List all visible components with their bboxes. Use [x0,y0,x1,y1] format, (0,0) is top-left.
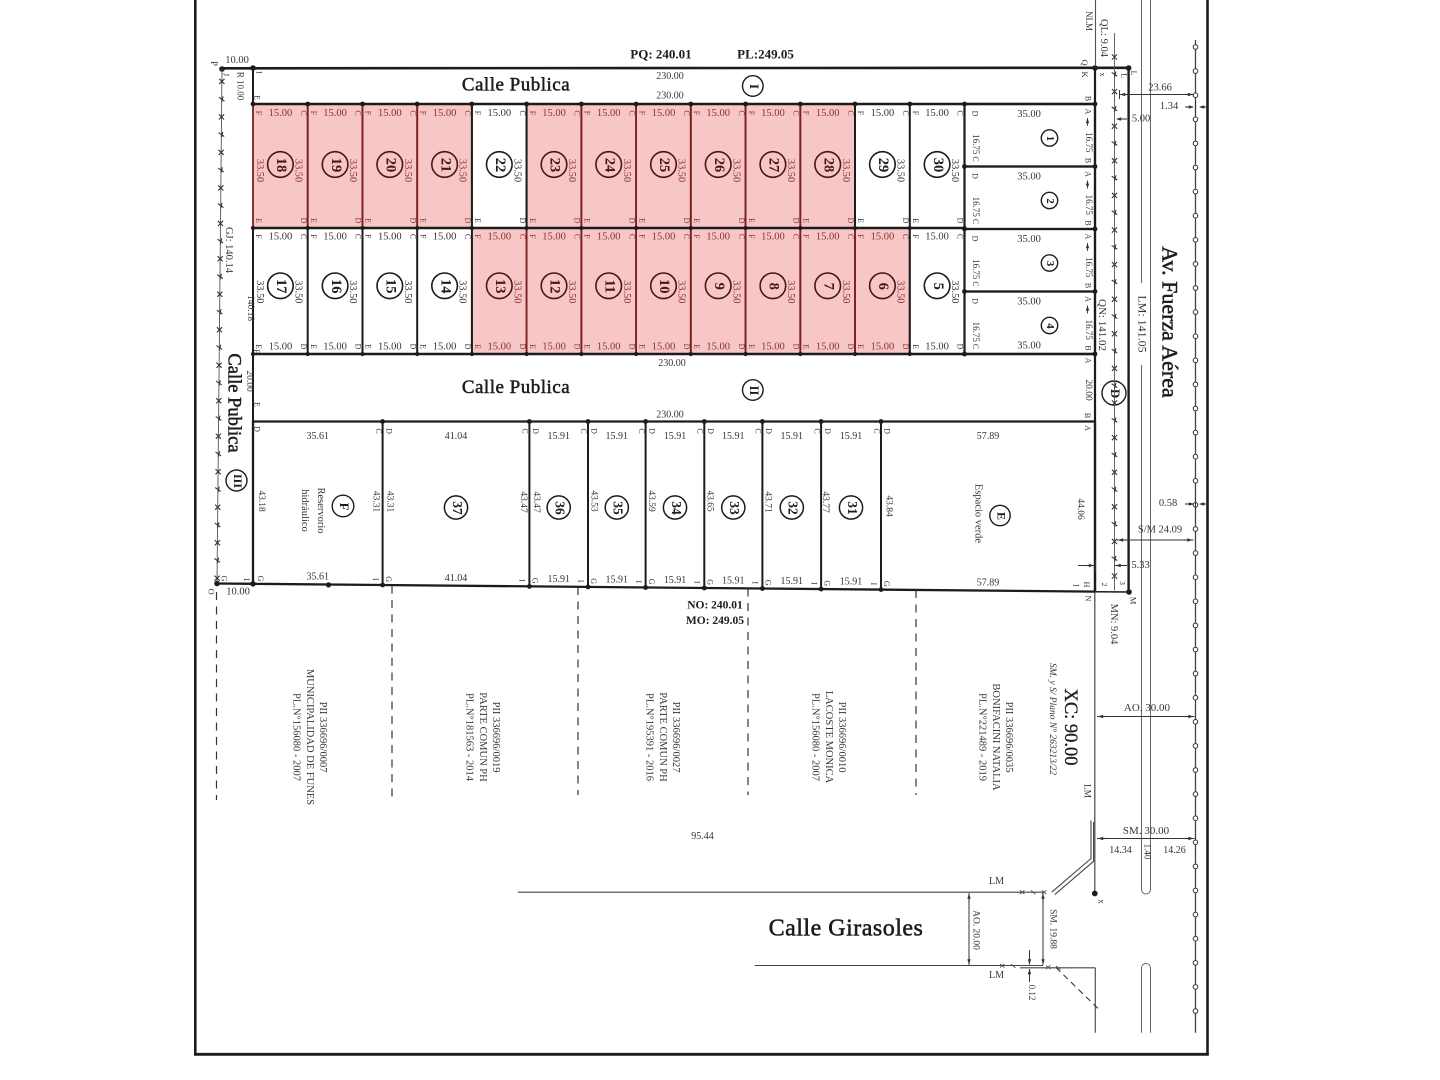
svg-text:43.71: 43.71 [762,491,772,513]
svg-text:E: E [583,344,592,349]
svg-text:AO. 20.00: AO. 20.00 [970,910,980,950]
svg-text:Espacio verde: Espacio verde [973,484,984,544]
svg-text:15.91: 15.91 [606,574,629,585]
svg-text:PL.N°156080 - 2007: PL.N°156080 - 2007 [291,693,302,781]
svg-text:F: F [637,111,646,116]
svg-text:F: F [473,234,482,239]
svg-text:D: D [627,218,636,224]
svg-text:B: B [1084,220,1093,225]
svg-text:B: B [1084,96,1093,101]
svg-text:230.00: 230.00 [656,90,684,101]
svg-text:C: C [971,281,980,286]
svg-text:33.50: 33.50 [895,280,906,303]
svg-text:BONIFACINI NATALIA: BONIFACINI NATALIA [990,683,1001,791]
svg-text:MO: 249.05: MO: 249.05 [686,615,744,627]
svg-text:15.00: 15.00 [816,341,840,352]
svg-text:I: I [255,71,264,74]
svg-text:F: F [911,111,920,116]
svg-text:II: II [747,386,761,396]
svg-text:C: C [299,110,308,115]
svg-text:D: D [883,428,892,434]
svg-text:PL.N°156080 - 2007: PL.N°156080 - 2007 [810,693,821,781]
svg-text:29: 29 [875,158,891,173]
svg-text:B: B [1084,345,1093,350]
svg-text:33.50: 33.50 [566,159,577,182]
svg-text:C: C [518,110,527,115]
svg-text:PII 336696/0019: PII 336696/0019 [490,702,501,773]
svg-text:27: 27 [766,158,782,173]
svg-text:C: C [299,234,308,239]
svg-text:LM: LM [989,876,1004,887]
svg-text:31: 31 [845,501,860,515]
svg-text:C: C [408,110,417,115]
svg-text:S/M 24.09: S/M 24.09 [1138,524,1182,535]
svg-text:G: G [256,576,265,582]
svg-text:O: O [207,588,217,594]
svg-text:16.75: 16.75 [971,322,981,343]
svg-text:LM: 141.05: LM: 141.05 [1135,295,1149,352]
svg-text:SM. 30.00: SM. 30.00 [1123,825,1170,837]
svg-text:C: C [901,110,910,115]
svg-text:SM. 19.88: SM. 19.88 [1047,909,1057,949]
svg-text:F: F [856,234,865,239]
svg-text:D: D [764,428,773,434]
svg-text:C: C [812,428,821,433]
svg-text:Calle Girasoles: Calle Girasoles [769,916,924,942]
svg-text:15.00: 15.00 [925,108,949,119]
svg-text:1.40: 1.40 [1142,844,1152,860]
svg-text:15.00: 15.00 [761,108,785,119]
svg-text:I: I [371,578,380,581]
svg-text:C: C [637,428,646,433]
svg-text:F: F [418,111,427,116]
svg-text:A: A [1084,296,1093,302]
svg-text:43.47: 43.47 [531,491,541,513]
svg-text:13: 13 [492,279,508,294]
svg-text:D: D [791,218,800,224]
svg-text:35.00: 35.00 [1017,296,1041,307]
svg-text:35.00: 35.00 [1017,109,1041,120]
svg-text:I: I [576,580,585,583]
svg-text:E: E [911,344,920,349]
svg-text:P: P [209,61,219,66]
svg-text:33.50: 33.50 [457,159,468,182]
svg-text:E: E [692,344,701,349]
svg-text:15.00: 15.00 [323,108,347,119]
svg-text:43.47: 43.47 [518,491,528,513]
svg-text:F: F [856,111,865,116]
svg-text:G: G [882,581,891,587]
svg-text:41.04: 41.04 [445,573,468,584]
svg-text:D: D [573,218,582,224]
svg-text:15.00: 15.00 [597,341,621,352]
svg-text:C: C [627,234,636,239]
svg-text:PQ: 240.01: PQ: 240.01 [630,46,691,61]
svg-text:G: G [589,578,598,584]
svg-text:33.50: 33.50 [457,280,468,303]
svg-text:G: G [220,576,229,582]
svg-text:C: C [956,110,965,115]
svg-text:NLM: NLM [1084,11,1094,31]
svg-text:E: E [801,344,810,349]
svg-text:I: I [1072,584,1081,587]
svg-text:26: 26 [711,158,727,173]
svg-text:3: 3 [1044,261,1056,267]
svg-text:33.50: 33.50 [895,159,906,182]
svg-text:D: D [956,218,965,224]
svg-text:x: x [1096,899,1106,904]
svg-text:D: D [354,218,363,224]
svg-text:15.00: 15.00 [925,231,949,242]
svg-text:D: D [573,344,582,350]
svg-text:15.91: 15.91 [664,575,687,586]
svg-text:7: 7 [820,283,836,290]
svg-text:D: D [971,173,980,179]
svg-text:8: 8 [766,283,782,290]
svg-text:PL:249.05: PL:249.05 [737,46,794,61]
svg-text:B: B [1083,413,1092,418]
svg-text:15.91: 15.91 [840,431,863,442]
svg-text:E: E [254,218,263,223]
svg-text:PL.N°181563 - 2014: PL.N°181563 - 2014 [464,693,475,782]
svg-text:D: D [956,344,965,350]
svg-text:E: E [583,218,592,223]
svg-text:SM. y S/ Plano N° 263213/22: SM. y S/ Plano N° 263213/22 [1047,663,1058,775]
svg-text:F: F [801,111,810,116]
svg-text:F: F [337,503,351,511]
svg-text:16.75: 16.75 [1084,320,1094,341]
svg-text:C: C [846,234,855,239]
svg-text:15.00: 15.00 [323,231,347,242]
svg-text:1: 1 [1044,136,1056,142]
svg-text:25: 25 [656,158,672,173]
svg-text:F: F [692,234,701,239]
svg-text:15.00: 15.00 [816,108,840,119]
svg-text:E: E [994,512,1008,520]
svg-text:F: F [692,111,701,116]
svg-text:C: C [791,110,800,115]
svg-text:E: E [747,344,756,349]
svg-text:33.50: 33.50 [347,159,358,182]
svg-text:C: C [573,234,582,239]
svg-text:F: F [254,234,263,239]
svg-text:D: D [299,344,308,350]
svg-text:E: E [473,344,482,349]
svg-text:15.00: 15.00 [761,231,785,242]
svg-text:1.34: 1.34 [1160,101,1179,112]
svg-text:Calle Publica: Calle Publica [462,74,570,95]
svg-text:43.31: 43.31 [370,491,380,513]
svg-text:C: C [354,110,363,115]
svg-text:20.00: 20.00 [244,370,254,392]
svg-text:G: G [705,579,714,585]
svg-text:Calle Publica: Calle Publica [223,353,243,452]
svg-text:20: 20 [382,158,398,173]
svg-text:15.00: 15.00 [597,231,621,242]
svg-text:E: E [364,344,373,349]
svg-text:E: E [364,218,373,223]
svg-text:F: F [309,234,318,239]
svg-text:D: D [408,218,417,224]
svg-text:D: D [299,218,308,224]
svg-text:15.00: 15.00 [269,231,293,242]
svg-text:XC: 90.00: XC: 90.00 [1060,688,1080,765]
svg-text:15.91: 15.91 [781,576,804,587]
svg-text:10: 10 [656,279,672,294]
svg-text:D: D [823,428,832,434]
svg-text:15.00: 15.00 [652,231,676,242]
svg-text:D: D [463,344,472,350]
svg-text:G: G [647,579,656,585]
svg-text:E: E [528,218,537,223]
svg-text:F: F [252,349,261,354]
svg-text:PII 336696/0035: PII 336696/0035 [1003,702,1014,773]
svg-text:C: C [579,428,588,433]
svg-text:I: I [692,581,701,584]
svg-text:15.91: 15.91 [606,431,629,442]
svg-text:2: 2 [1044,198,1056,204]
svg-text:G: G [531,578,540,584]
svg-text:15.00: 15.00 [433,108,457,119]
svg-text:36: 36 [553,501,568,515]
svg-text:G: G [822,580,831,586]
svg-text:QL: 9.04: QL: 9.04 [1098,19,1109,58]
svg-text:D: D [846,218,855,224]
svg-text:C: C [627,110,636,115]
svg-text:57.89: 57.89 [977,431,1000,442]
svg-text:D: D [408,344,417,350]
svg-text:33.50: 33.50 [840,159,851,182]
svg-text:A: A [1084,109,1093,115]
svg-text:43.84: 43.84 [883,495,893,517]
svg-text:9: 9 [711,283,727,290]
svg-text:F: F [418,234,427,239]
svg-text:E: E [801,218,810,223]
svg-text:16.75: 16.75 [971,134,981,155]
svg-text:20.00: 20.00 [1083,379,1093,401]
svg-text:35.00: 35.00 [1017,171,1041,182]
svg-text:D: D [627,344,636,350]
svg-text:14.26: 14.26 [1163,845,1186,856]
svg-text:3: 3 [1118,581,1127,585]
svg-text:PL.N°221489 - 2019: PL.N°221489 - 2019 [977,693,988,781]
svg-text:B: B [1084,283,1093,288]
svg-text:C: C [901,234,910,239]
svg-text:E: E [856,218,865,223]
svg-text:15: 15 [382,279,398,294]
svg-text:230.00: 230.00 [658,358,686,369]
svg-text:43.65: 43.65 [704,490,714,512]
svg-text:C: C [521,428,530,433]
svg-text:33.50: 33.50 [566,280,577,303]
svg-text:33: 33 [727,501,742,515]
svg-text:F: F [583,234,592,239]
svg-text:F: F [911,234,920,239]
svg-text:C: C [737,234,746,239]
svg-text:15.00: 15.00 [378,108,402,119]
svg-text:15.00: 15.00 [378,231,402,242]
svg-text:0.58: 0.58 [1159,498,1177,509]
svg-text:15.00: 15.00 [542,231,566,242]
svg-text:C: C [971,219,980,224]
svg-text:R 10.00: R 10.00 [235,72,245,101]
svg-text:24: 24 [601,158,617,173]
svg-text:C: C [791,234,800,239]
svg-text:15.00: 15.00 [487,341,511,352]
svg-text:D: D [846,344,855,350]
svg-text:15.91: 15.91 [840,576,863,587]
svg-text:III: III [231,474,245,488]
svg-text:4: 4 [1044,323,1056,329]
svg-text:D: D [518,344,527,350]
svg-text:33.50: 33.50 [293,280,304,303]
svg-text:E: E [637,344,646,349]
svg-text:15.00: 15.00 [542,108,566,119]
svg-text:15.00: 15.00 [542,341,566,352]
svg-text:D: D [737,344,746,350]
svg-text:I: I [809,582,818,585]
svg-text:F: F [583,111,592,116]
svg-text:32: 32 [786,501,801,515]
svg-text:F: F [364,111,373,116]
svg-text:17: 17 [273,279,289,294]
svg-text:C: C [374,428,383,433]
svg-text:15.00: 15.00 [761,341,785,352]
svg-text:15.91: 15.91 [547,431,570,442]
svg-text:D: D [682,218,691,224]
svg-text:28: 28 [820,158,836,173]
svg-text:23: 23 [547,158,563,173]
svg-text:C: C [754,428,763,433]
svg-text:33.50: 33.50 [621,159,632,182]
svg-text:D: D [971,236,980,242]
svg-text:35.61: 35.61 [307,431,330,442]
svg-text:0.12: 0.12 [1027,985,1037,1001]
svg-text:C: C [682,234,691,239]
svg-text:15.00: 15.00 [378,341,402,352]
svg-text:14: 14 [437,279,453,294]
svg-text:AO. 30.00: AO. 30.00 [1124,702,1171,714]
svg-text:33.50: 33.50 [511,280,522,303]
svg-text:D: D [463,218,472,224]
svg-text:PARTE COMUN PH: PARTE COMUN PH [657,692,668,782]
svg-text:16.75: 16.75 [971,259,981,280]
svg-text:F: F [747,111,756,116]
svg-text:B: B [1084,158,1093,163]
svg-text:F: F [747,234,756,239]
svg-text:PII 336696/0007: PII 336696/0007 [317,702,328,773]
svg-text:33.50: 33.50 [402,280,413,303]
svg-text:PARTE COMUN PH: PARTE COMUN PH [477,692,488,782]
svg-text:C: C [956,234,965,239]
svg-text:LACOSTE MONICA: LACOSTE MONICA [823,691,834,784]
svg-text:15.00: 15.00 [652,341,676,352]
svg-text:E: E [418,218,427,223]
svg-text:43.59: 43.59 [646,490,656,512]
svg-text:35.00: 35.00 [1017,234,1041,245]
svg-text:F: F [637,234,646,239]
svg-text:44.06: 44.06 [1075,498,1085,520]
svg-text:F: F [254,111,263,116]
svg-text:E: E [637,218,646,223]
svg-text:C: C [463,110,472,115]
svg-text:15.00: 15.00 [323,341,347,352]
svg-text:I: I [634,580,643,583]
svg-text:M: M [1129,597,1139,605]
svg-text:E: E [253,402,262,407]
svg-text:35: 35 [611,501,626,515]
svg-text:33.50: 33.50 [347,280,358,303]
svg-text:30: 30 [930,158,946,173]
svg-text:E: E [528,344,537,349]
svg-text:D: D [253,426,262,432]
svg-text:33.50: 33.50 [785,280,796,303]
svg-text:F: F [801,234,810,239]
svg-text:41.04: 41.04 [445,431,468,442]
svg-text:E: E [309,218,318,223]
svg-text:C: C [971,344,980,349]
svg-text:15.91: 15.91 [664,431,687,442]
svg-text:23.66: 23.66 [1148,82,1172,93]
svg-text:F: F [309,111,318,116]
svg-text:I: I [751,581,760,584]
svg-text:16.75: 16.75 [1084,257,1094,278]
svg-text:10.00: 10.00 [226,586,250,597]
svg-text:19: 19 [328,158,344,173]
svg-text:43.31: 43.31 [384,491,394,513]
svg-text:15.00: 15.00 [652,108,676,119]
svg-text:33.50: 33.50 [840,280,851,303]
svg-text:C: C [518,234,527,239]
svg-text:D: D [737,218,746,224]
svg-text:C: C [846,110,855,115]
svg-text:33.50: 33.50 [785,159,796,182]
svg-text:16: 16 [328,279,344,294]
svg-text:Calle Publica: Calle Publica [462,377,570,398]
svg-text:15.00: 15.00 [597,108,621,119]
svg-text:LM: LM [989,970,1004,981]
svg-text:D: D [706,428,715,434]
svg-text:I: I [242,578,251,581]
svg-text:N: N [1084,596,1093,602]
svg-text:33.50: 33.50 [254,159,265,182]
svg-text:35.61: 35.61 [307,571,330,582]
svg-text:15.00: 15.00 [487,231,511,242]
svg-text:GJ: 140.14: GJ: 140.14 [223,227,234,274]
svg-text:15.00: 15.00 [433,341,457,352]
svg-text:PII 336696/0027: PII 336696/0027 [670,702,681,773]
svg-text:D: D [354,344,363,350]
svg-text:PL.N°195391 - 2016: PL.N°195391 - 2016 [644,693,655,781]
svg-text:F: F [364,234,373,239]
svg-text:E: E [747,218,756,223]
svg-text:43.77: 43.77 [820,491,830,513]
svg-text:C: C [971,156,980,161]
svg-text:15.91: 15.91 [547,574,570,585]
svg-text:33.50: 33.50 [402,159,413,182]
svg-text:x: x [1098,73,1107,77]
svg-text:15.00: 15.00 [871,341,895,352]
svg-text:LM: LM [1081,784,1091,799]
svg-text:I: I [518,579,527,582]
svg-text:D: D [791,344,800,350]
svg-text:5: 5 [930,283,946,290]
svg-text:15.91: 15.91 [722,575,745,586]
svg-text:16.75: 16.75 [1084,195,1094,216]
svg-text:MN: 9.04: MN: 9.04 [1108,604,1119,646]
svg-text:43.53: 43.53 [588,490,598,512]
svg-text:11: 11 [601,279,617,293]
